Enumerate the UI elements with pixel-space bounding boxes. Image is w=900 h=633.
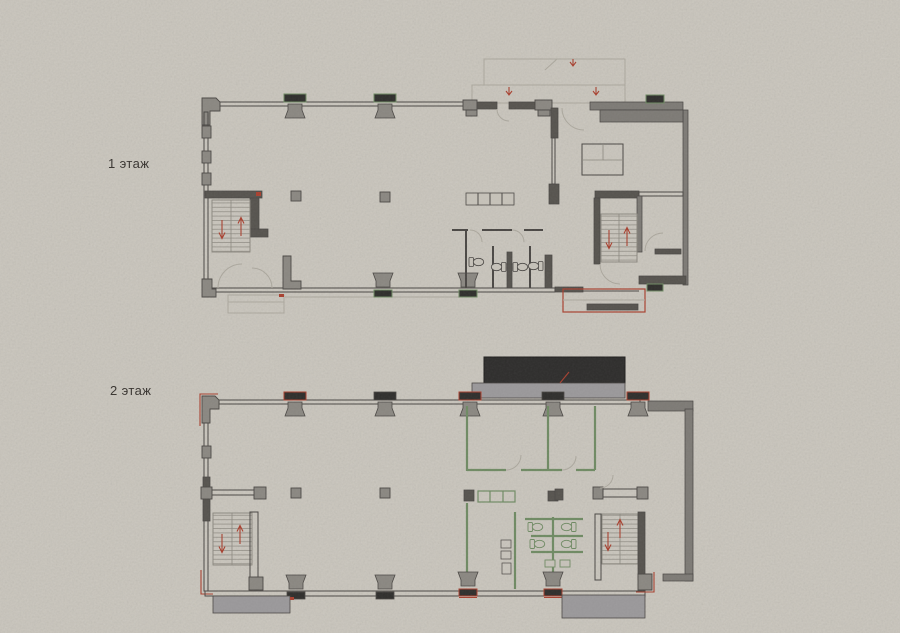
- floor-plans-drawing: [0, 0, 900, 633]
- paper-background: 1 этаж 2 этаж: [0, 0, 900, 633]
- floor1-label: 1 этаж: [108, 156, 149, 171]
- floor2-label: 2 этаж: [110, 383, 151, 398]
- overlay-grain-texture: [0, 0, 900, 633]
